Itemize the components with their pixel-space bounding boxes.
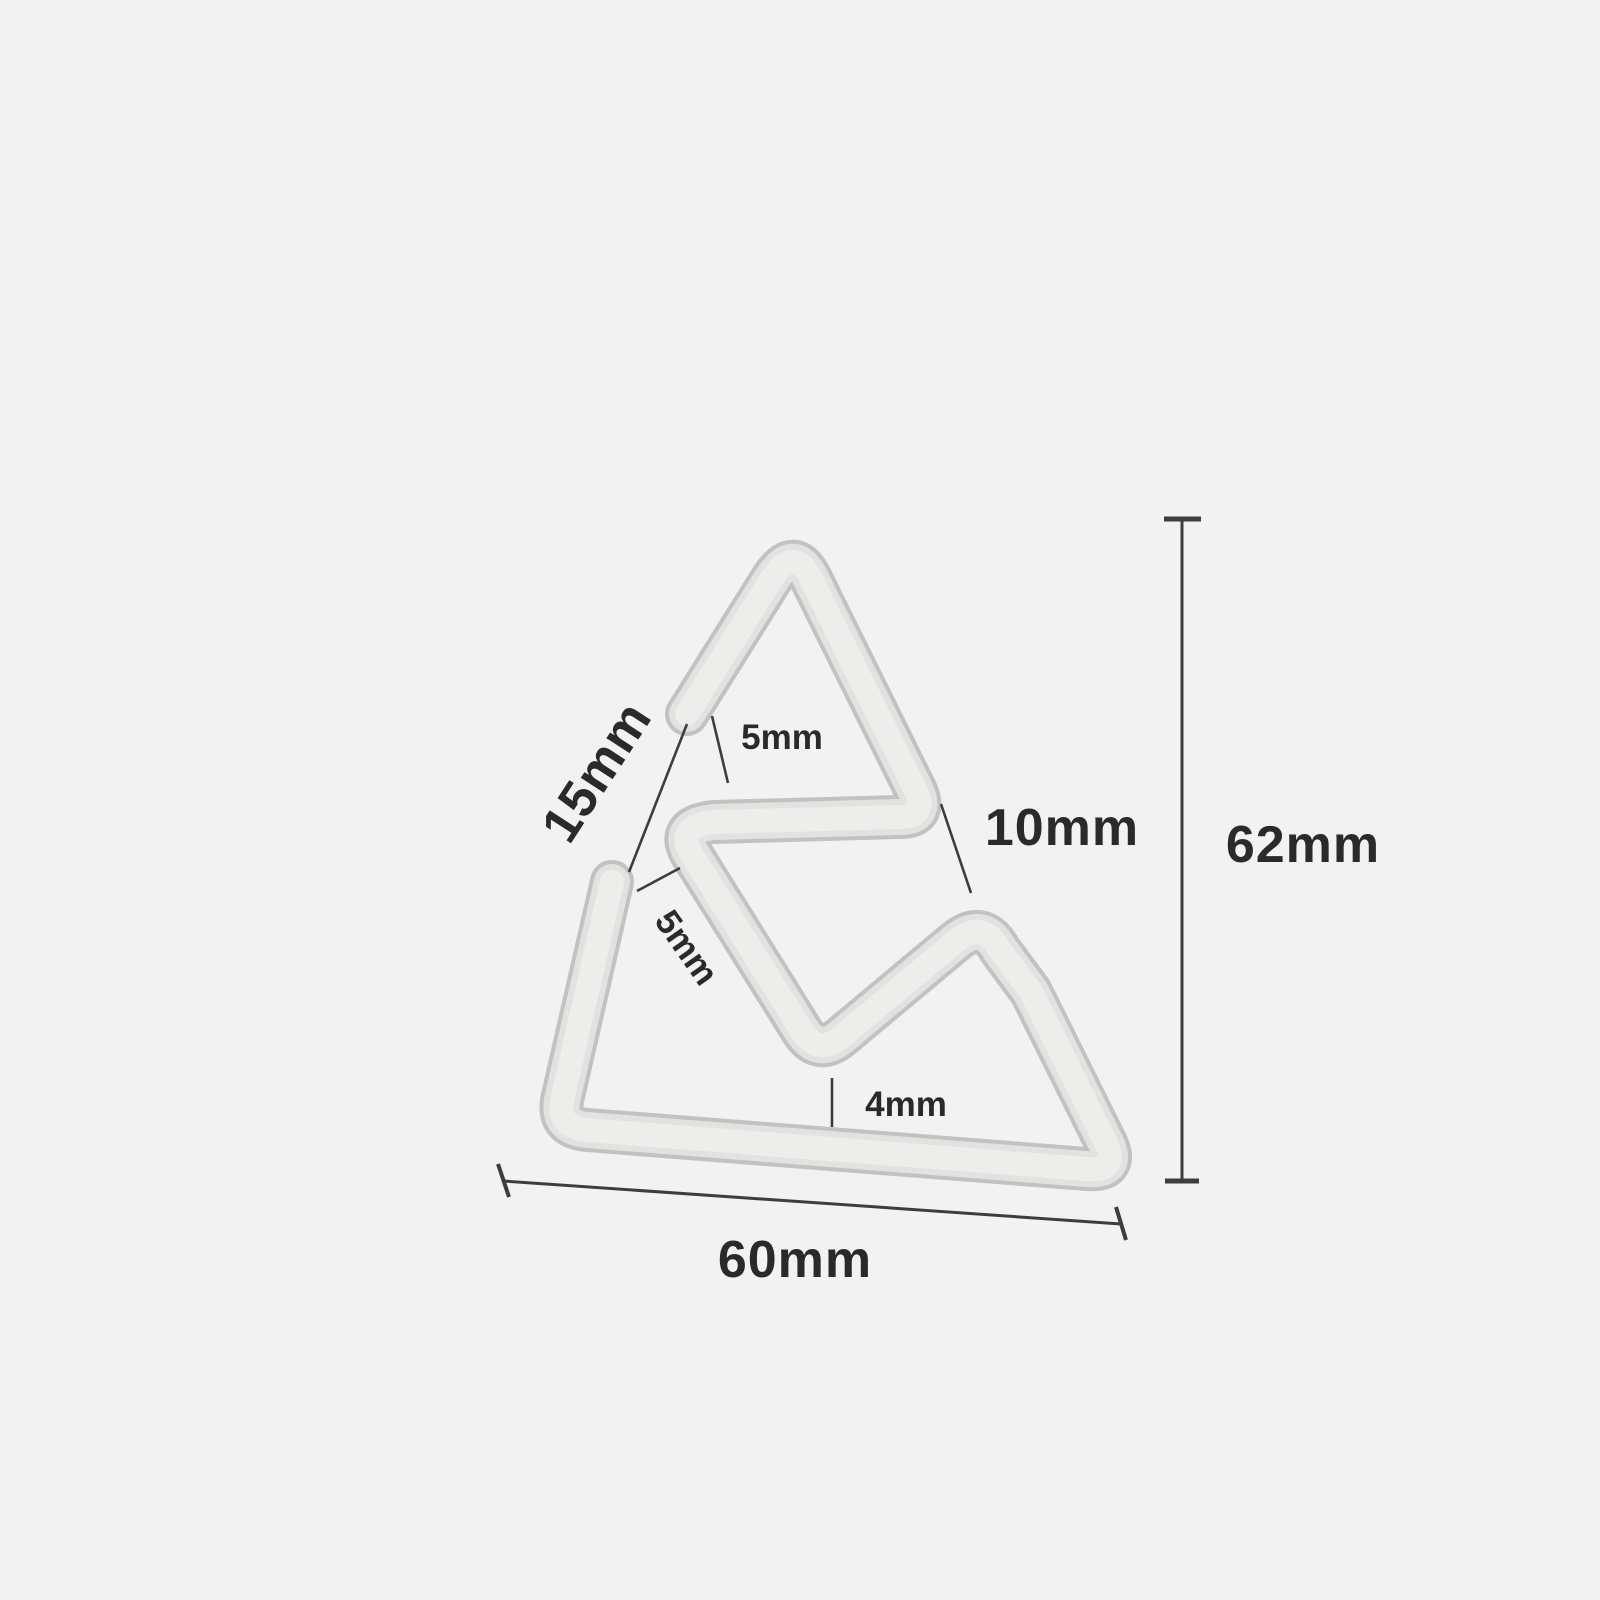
dim-label-60mm: 60mm	[718, 1230, 872, 1290]
wire-clip-highlight	[561, 562, 1110, 1170]
product-photo-canvas	[0, 0, 1600, 1600]
wire-clip	[561, 562, 1110, 1170]
dim-label-4mm: 4mm	[865, 1085, 947, 1125]
dim-label-10mm: 10mm	[985, 798, 1139, 858]
leader-line-5mm-top	[712, 716, 728, 783]
width-dimension-line	[503, 1181, 1121, 1224]
leader-line-5mm-side	[637, 868, 680, 891]
dim-label-62mm: 62mm	[1226, 815, 1380, 875]
dim-label-5mm-top: 5mm	[741, 718, 823, 758]
leader-line-10mm	[941, 804, 971, 893]
product-image-stage: 15mm 5mm 5mm 10mm 62mm 60mm 4mm	[0, 0, 1600, 1600]
